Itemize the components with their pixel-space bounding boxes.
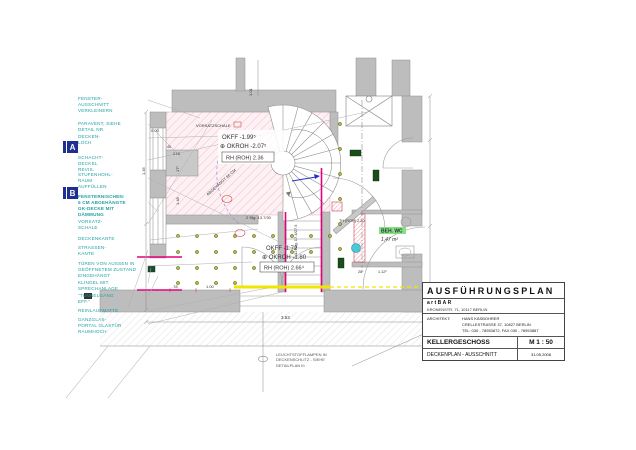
section-cut-bar bbox=[63, 141, 66, 153]
architect-row: ARCHITEKT: HANS KÄSBOHRER CRELLESTRASSE … bbox=[423, 314, 564, 337]
plan-type: DECKENPLAN - AUSSCHNITT bbox=[423, 349, 517, 360]
doorbell-icon bbox=[148, 266, 155, 272]
label-paravent: PARAVENT, SIEHE DETAIL NR. bbox=[78, 121, 146, 133]
label-tueren: TÜREN VON AUSSEN IN GEÖFFNETEM ZUSTAND E… bbox=[78, 261, 146, 279]
section-marker-b: B bbox=[63, 187, 78, 199]
dim-215: 2.15 bbox=[173, 152, 180, 156]
stair-straight-label: 2 Stg. 13.7/30 bbox=[246, 215, 272, 220]
dim-101: 1.01 bbox=[248, 87, 253, 96]
section-marker-a: A bbox=[63, 141, 78, 153]
architect-phone: TEL: 030 - 78953872, FAX 030 - 78953887 bbox=[462, 328, 539, 333]
label-reinlaufmatte: REINLAUFMATTE bbox=[78, 308, 146, 314]
small-hatched-pier bbox=[332, 202, 342, 211]
dim-45: 45 bbox=[167, 145, 171, 149]
door-height-label: TH (ROH) 2.20 bbox=[339, 219, 365, 223]
architect-address: CRELLESTRASSE 37, 10827 BERLIN bbox=[462, 322, 539, 327]
drawing-canvas: VORSATZSCHALE OKFF -1.99⁵ ⊕ OKROH -2.07⁵… bbox=[0, 0, 636, 450]
dim-281: 28¹ bbox=[358, 270, 364, 274]
okroh-lower-label: ⊕ OKROH -1.80 bbox=[262, 255, 307, 261]
label-klingel: KLINGEL MIT SPRECHANLAGE bbox=[78, 280, 146, 292]
shaft-symbol bbox=[346, 96, 392, 126]
project-name: artBAR bbox=[427, 300, 560, 306]
floor-row: KELLERGESCHOSS M 1 : 50 bbox=[423, 337, 564, 349]
floor-name: KELLERGESCHOSS bbox=[423, 337, 517, 348]
label-tunnelgang: "TUNNELGANG EFF." bbox=[78, 293, 146, 305]
vorsatzschale-note: VORSATZSCHALE bbox=[196, 123, 231, 128]
dim-112: 1.12² bbox=[378, 270, 387, 274]
label-fenster-ausschnitt: FENSTER- AUSSCHNITT VERKLEINERN bbox=[78, 96, 146, 114]
label-deckenloch: DECKEN- LOCH bbox=[78, 134, 146, 146]
stair-spiral-label: 12 Stg. 17.4/27.5 bbox=[293, 224, 298, 255]
project-row: artBAR KRONENSTR. 71, 10117 BERLIN bbox=[423, 299, 564, 315]
scale-value: M 1 : 50 bbox=[517, 337, 564, 348]
plan-date: 31.05.2008 bbox=[517, 349, 564, 360]
rh-lower-label: RH (ROH) 2.66⁴ bbox=[264, 265, 305, 272]
architect-name: HANS KÄSBOHRER bbox=[462, 316, 539, 321]
architect-label: ARCHITEKT: bbox=[427, 316, 457, 334]
label-deckenkante: DECKENKANTE bbox=[78, 236, 146, 242]
wc-name-label: BEH. WC bbox=[381, 229, 403, 235]
rh-upper-label: RH (ROH) 2.36 bbox=[226, 156, 264, 162]
plan-title: AUSFÜHRUNGSPLAN bbox=[423, 283, 564, 299]
lamp-note: LEUCHTSTOFFLAMPEN IN DECKENSCHLITZ - SIE… bbox=[276, 352, 354, 368]
room-divider-wall bbox=[166, 215, 258, 224]
section-cut-bar bbox=[63, 187, 66, 199]
column-icon bbox=[352, 244, 361, 253]
wc-area-label: 1,47 m² bbox=[381, 237, 398, 243]
electrical-panel-icon bbox=[338, 258, 344, 268]
title-block: AUSFÜHRUNGSPLAN artBAR KRONENSTR. 71, 10… bbox=[422, 282, 565, 361]
label-strassenkante: STRASSEN- KANTE bbox=[78, 245, 146, 257]
okroh-upper-label: ⊕ OKROH -2.07⁵ bbox=[220, 143, 267, 150]
label-ganzglas: GANZGLAS- PORTAL GLASTÜR RAUMHOCH bbox=[78, 317, 146, 335]
label-fensternischen: FENSTERNISCHEN: 5 CM ABGEHÄNGTE GK-DECKE… bbox=[78, 194, 146, 218]
label-schachtdeckel: SCHACHT- DECKEL REVIS. bbox=[78, 155, 146, 173]
section-letter-a: A bbox=[67, 141, 78, 153]
section-letter-b: B bbox=[67, 187, 78, 199]
dim-100: 1.00 bbox=[206, 284, 215, 289]
electrical-panel-icon bbox=[350, 150, 361, 156]
dim-78: .78 bbox=[172, 284, 178, 289]
dim-148: 1.48 bbox=[175, 196, 180, 205]
plan-type-row: DECKENPLAN - AUSSCHNITT 31.05.2008 bbox=[423, 349, 564, 360]
label-vorsatzschale: VORSATZ- SCHALE bbox=[78, 219, 146, 231]
dim-353: 3.53 bbox=[281, 315, 290, 320]
project-address: KRONENSTR. 71, 10117 BERLIN bbox=[427, 307, 560, 312]
dim-175: 17⁵ bbox=[175, 166, 180, 172]
architect-info: HANS KÄSBOHRER CRELLESTRASSE 37, 10827 B… bbox=[462, 316, 539, 334]
okff-upper-label: OKFF -1.99⁵ bbox=[222, 134, 256, 141]
electrical-panel-icon bbox=[373, 170, 379, 181]
dim-000: 0.00 bbox=[151, 128, 160, 133]
label-stufenhohlraum: STUFENHOHL- RAUM AUFFÜLLEN bbox=[78, 172, 146, 190]
